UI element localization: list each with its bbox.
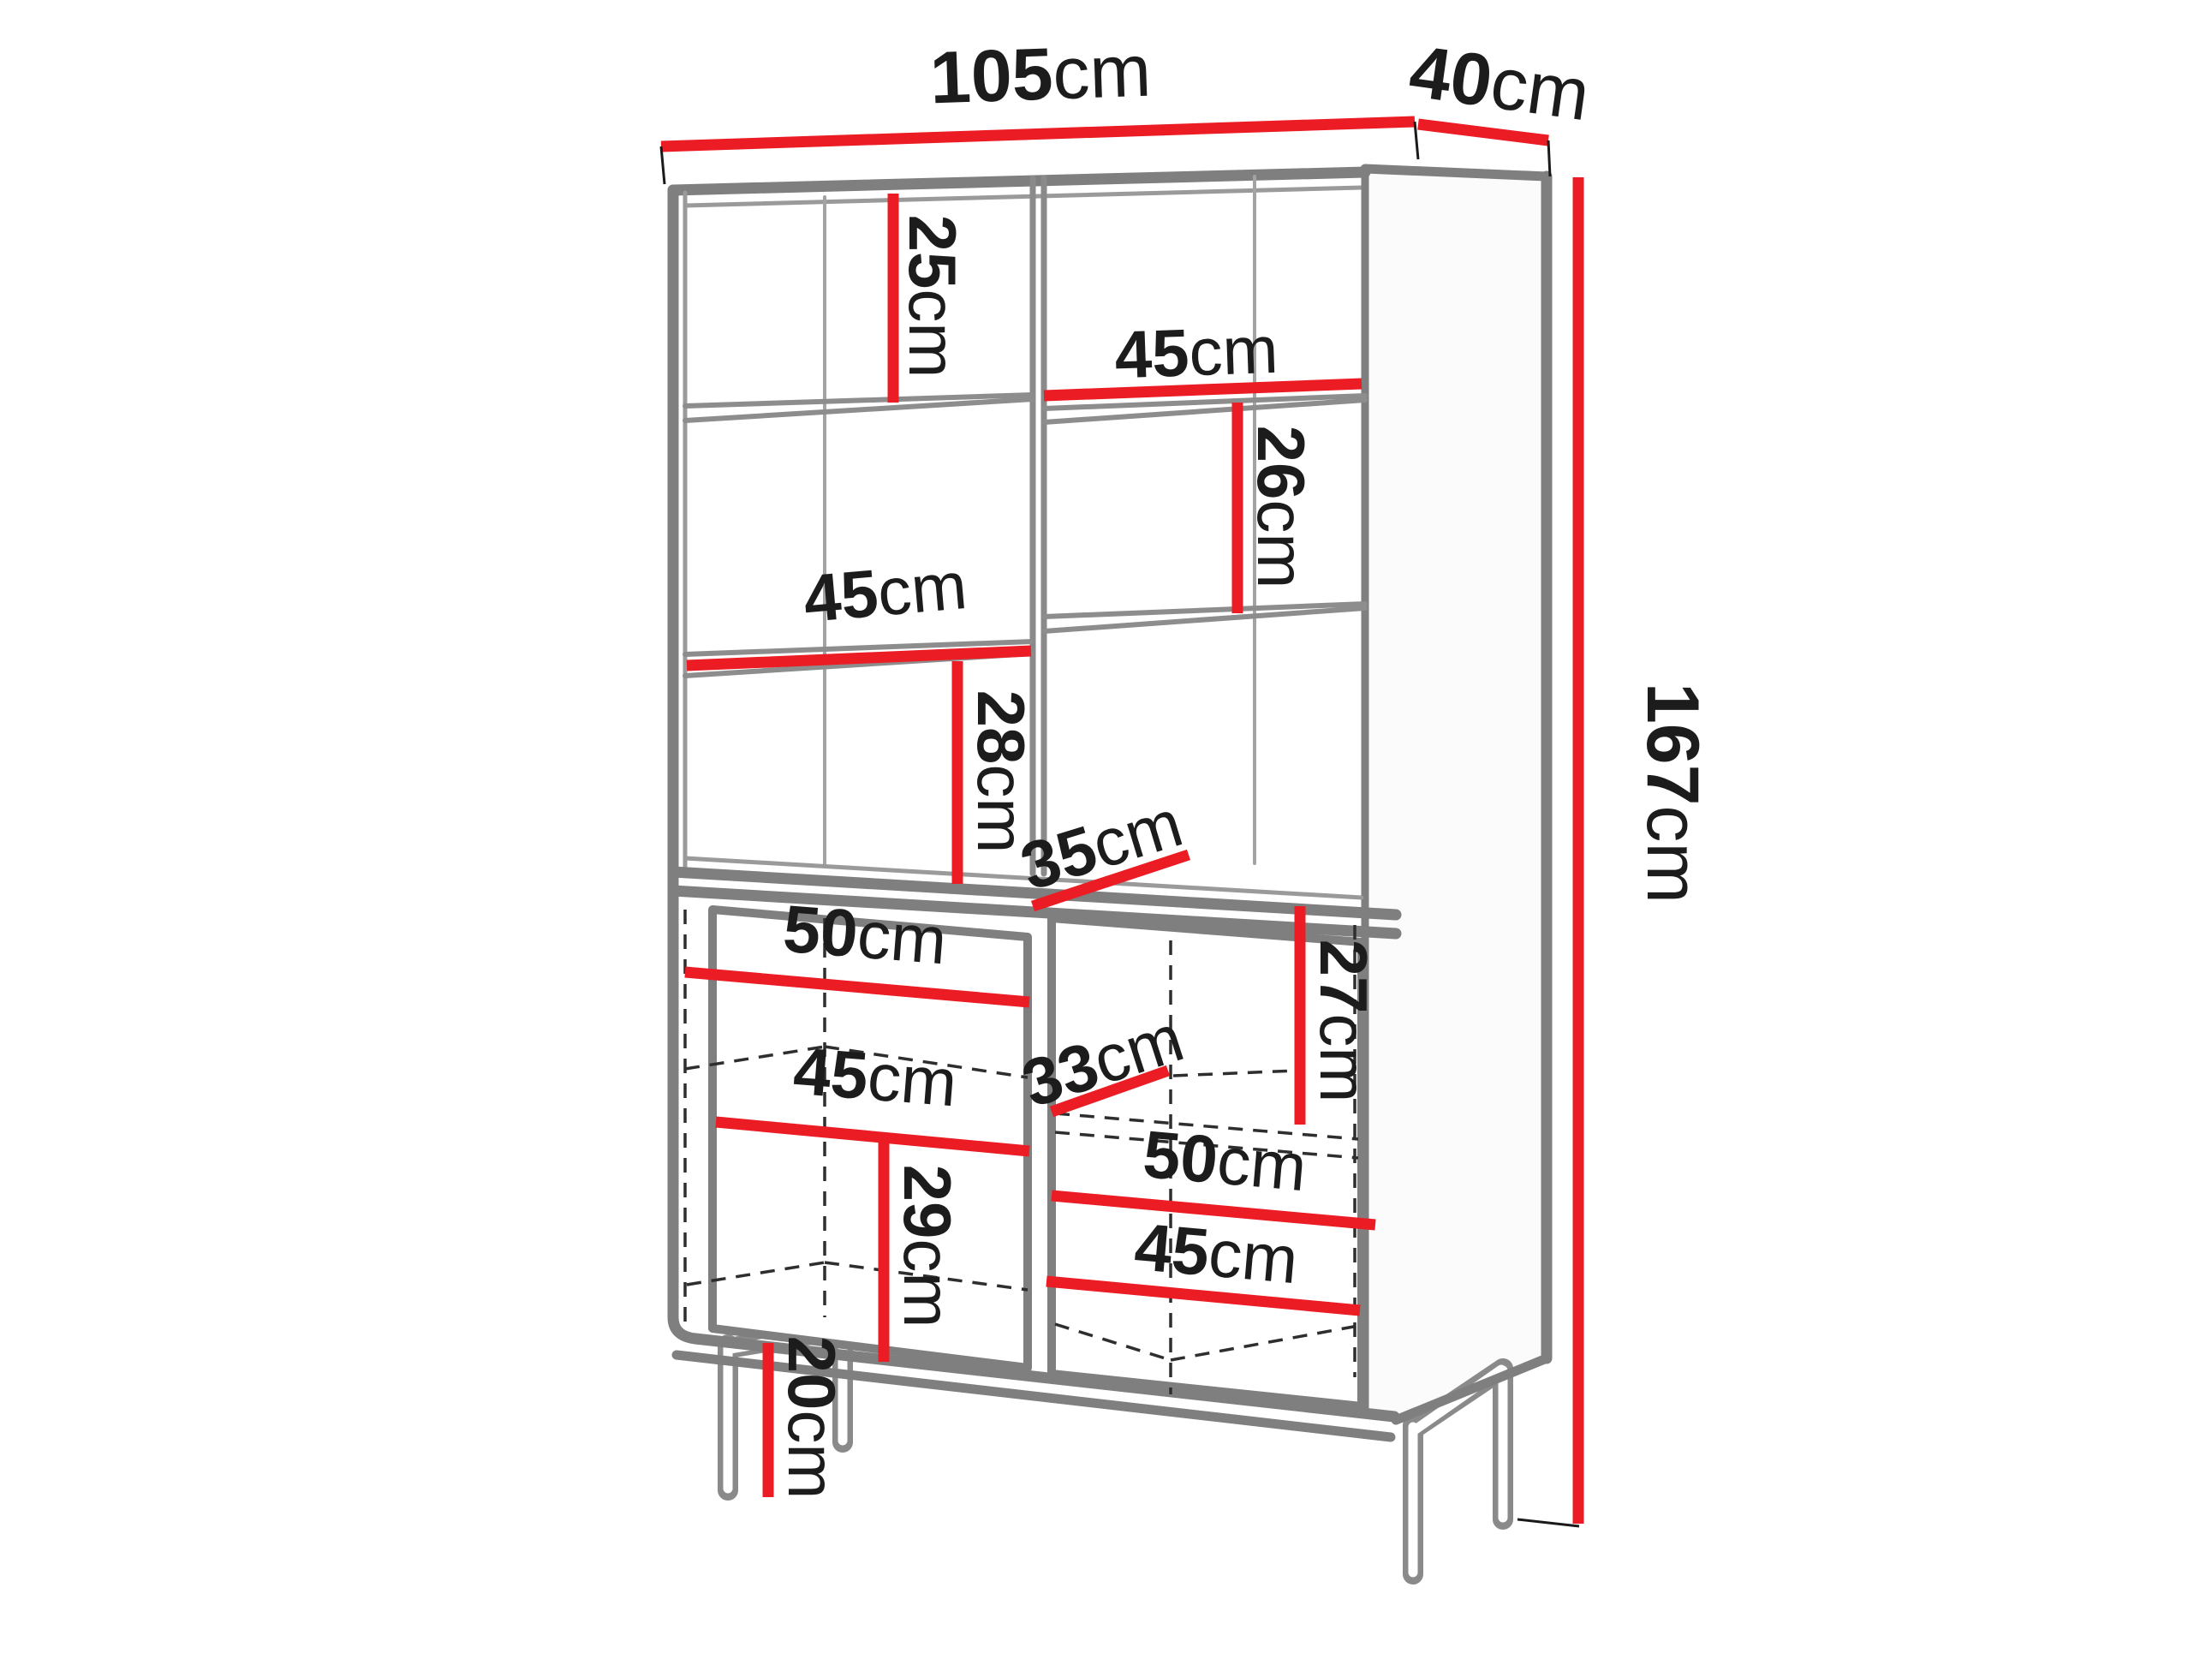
dim-label-25cm: 25cm — [895, 215, 970, 379]
tick-105-right — [1415, 122, 1418, 159]
top-front-edge — [673, 172, 1365, 190]
dim-label-45cm: 45cm — [1132, 1208, 1302, 1298]
dim-label-50cm: 50cm — [1141, 1116, 1310, 1205]
tick-40-right — [1548, 140, 1550, 176]
dim-label-45cm: 45cm — [801, 547, 970, 636]
left-shelf-1 — [685, 395, 1033, 421]
right-shelf-2 — [1044, 604, 1365, 631]
tick-167-bottom — [1517, 1519, 1579, 1526]
right-shelf-1 — [1044, 396, 1365, 422]
dim-label-26cm: 26cm — [1243, 426, 1319, 589]
dim-label-45cm: 45cm — [1113, 312, 1279, 393]
dim-label-29cm: 29cm — [890, 1165, 965, 1328]
side-panel-face — [1365, 171, 1547, 1419]
dim-label-167cm: 167cm — [1631, 683, 1714, 904]
dim-line-105 — [661, 122, 1415, 146]
dim-label-27cm: 27cm — [1306, 940, 1381, 1103]
diagram-canvas: 105cm40cm167cm25cm45cm26cm45cm28cm35cm50… — [0, 0, 2212, 1659]
dimension-labels: 105cm40cm167cm25cm45cm26cm45cm28cm35cm50… — [774, 30, 1714, 1500]
dim-label-45cm: 45cm — [791, 1033, 960, 1121]
dim-label-105cm: 105cm — [928, 30, 1152, 120]
dim-label-50cm: 50cm — [781, 891, 950, 979]
cabinet-dimension-diagram: 105cm40cm167cm25cm45cm26cm45cm28cm35cm50… — [0, 0, 2212, 1659]
dim-label-20cm: 20cm — [774, 1336, 850, 1500]
tick-105-left — [661, 146, 665, 184]
